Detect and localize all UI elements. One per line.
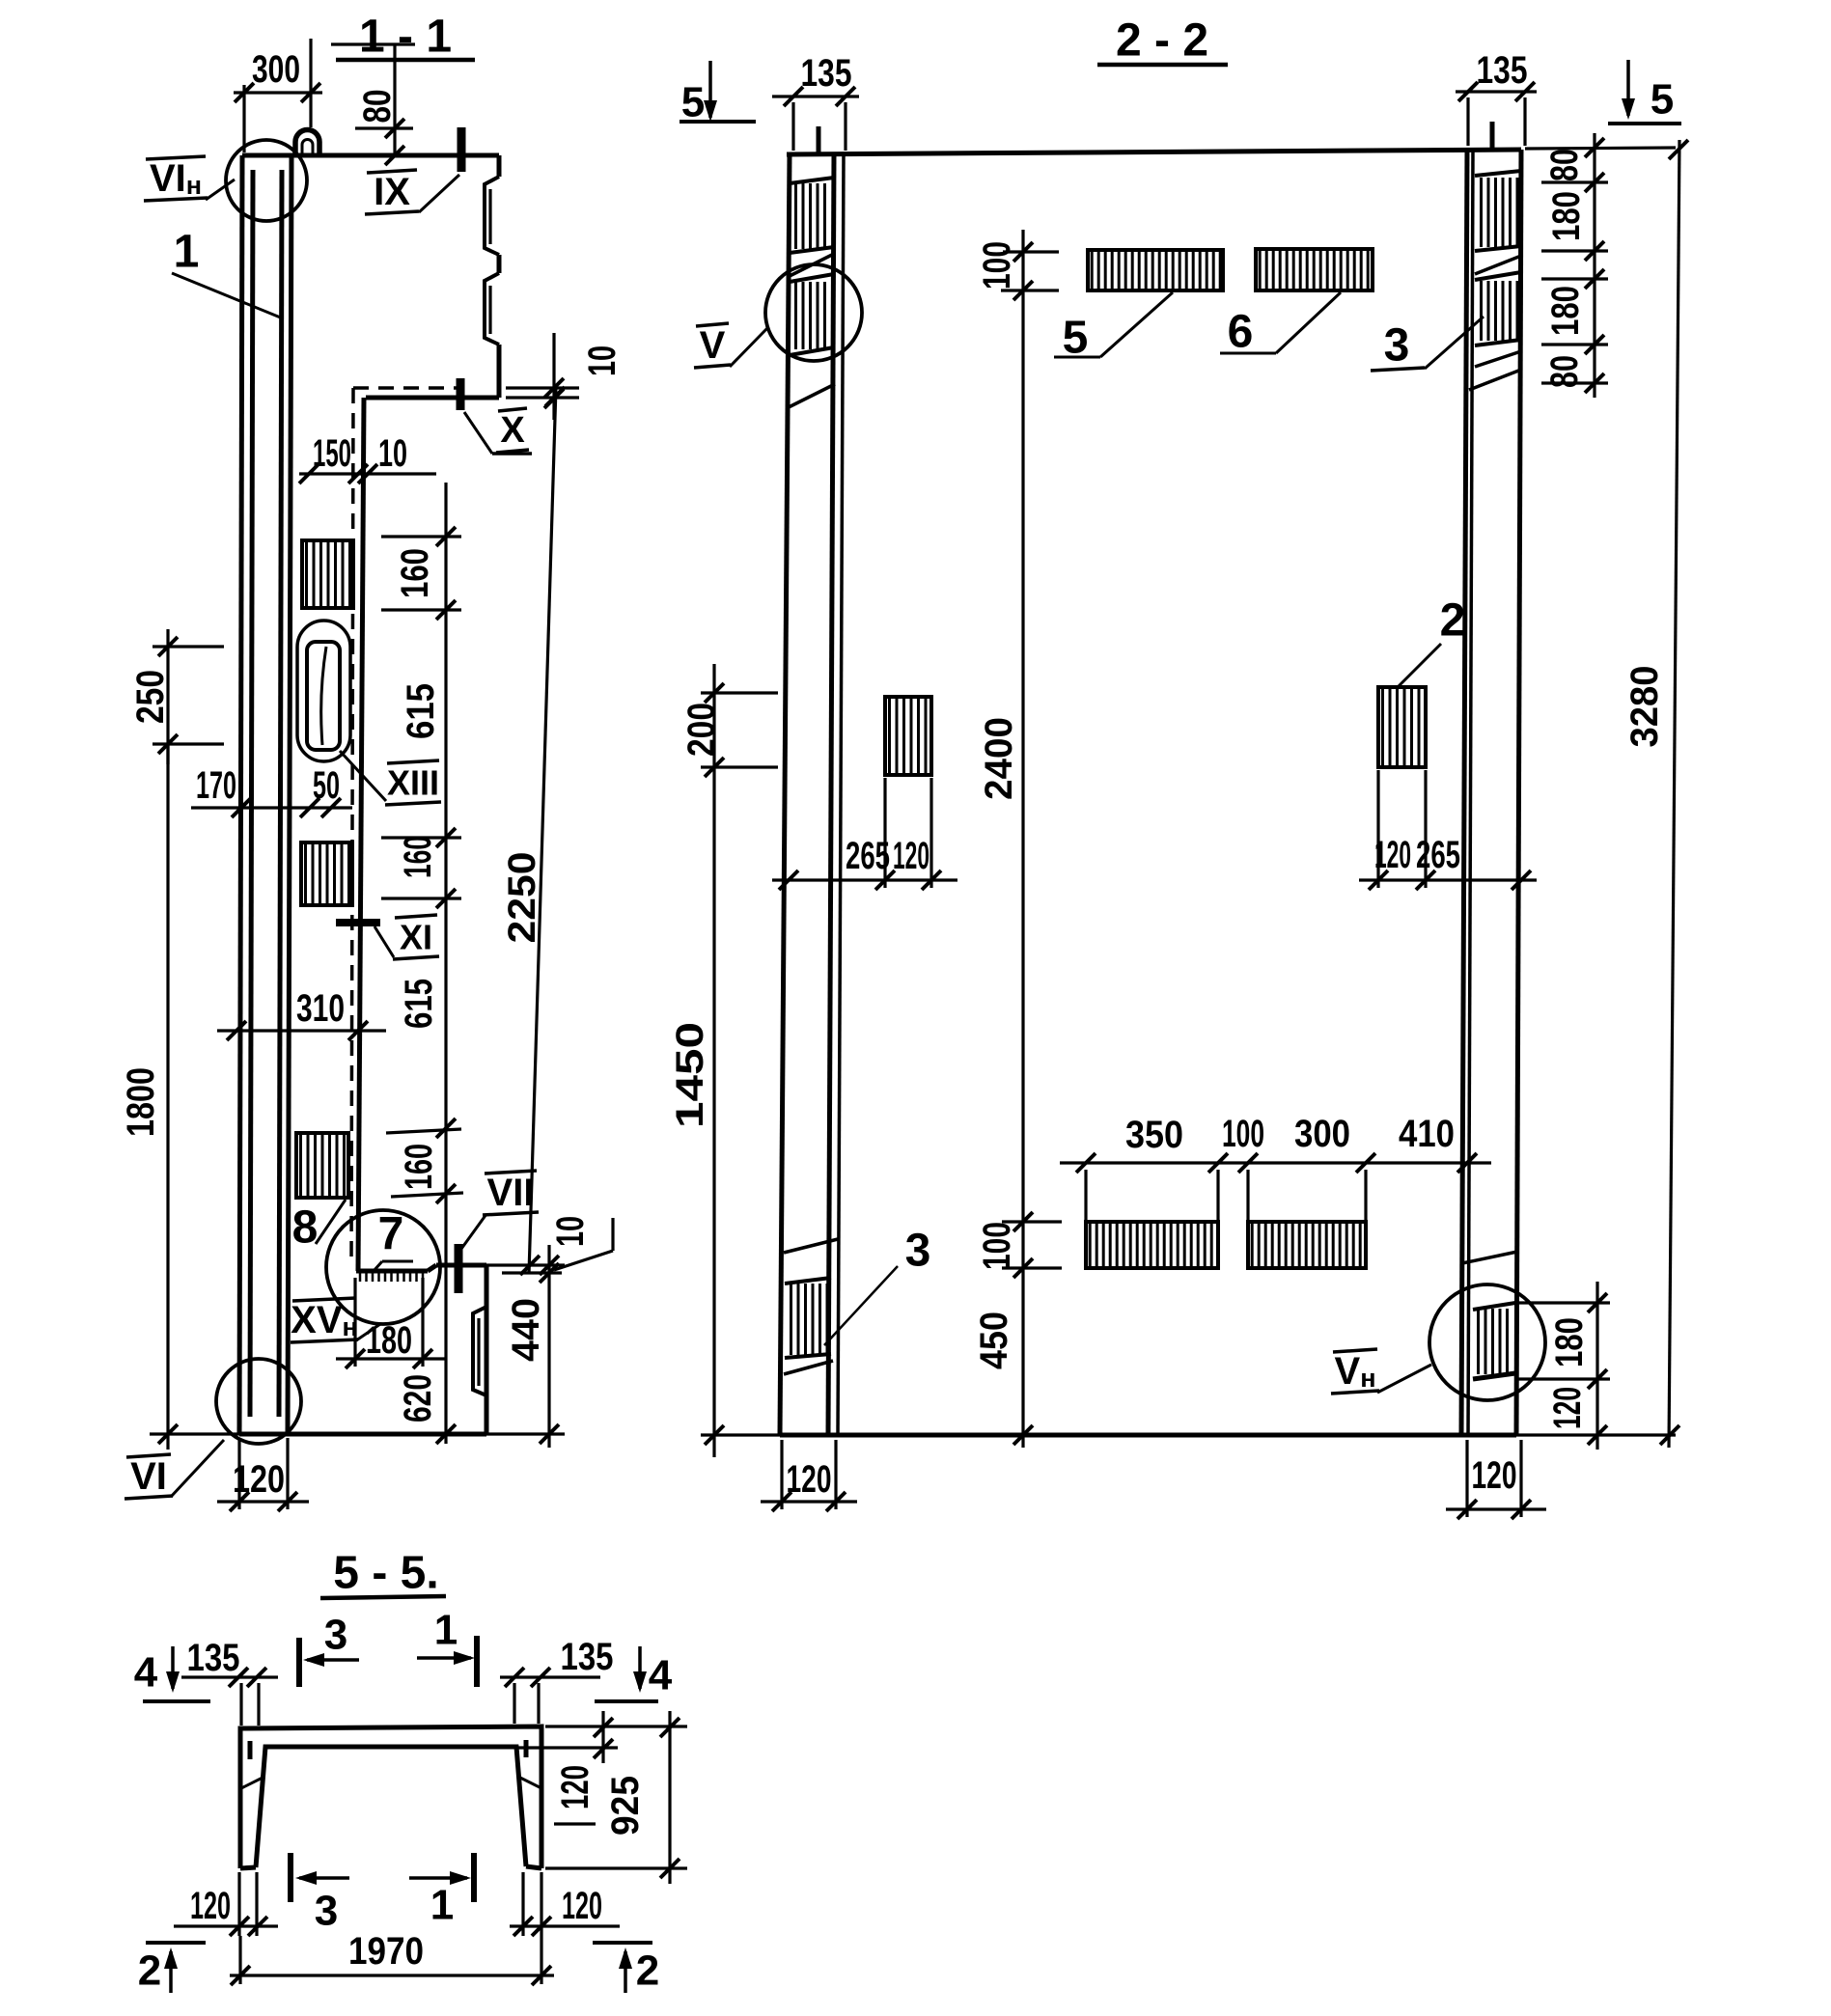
svg-text:310: 310 [296, 987, 345, 1030]
svg-text:5: 5 [681, 79, 705, 126]
svg-text:1: 1 [434, 1607, 458, 1654]
svg-text:VI: VI [130, 1455, 167, 1498]
svg-text:265: 265 [846, 835, 890, 877]
svg-text:2: 2 [636, 1947, 659, 1995]
svg-text:2400: 2400 [978, 717, 1020, 800]
svg-text:VII: VII [487, 1172, 535, 1214]
svg-text:160: 160 [397, 836, 439, 878]
svg-text:X: X [500, 410, 525, 451]
svg-text:265: 265 [1416, 834, 1460, 876]
svg-text:620: 620 [397, 1374, 439, 1422]
svg-text:615: 615 [398, 979, 440, 1029]
svg-text:1450: 1450 [669, 1022, 711, 1128]
svg-text:10: 10 [581, 345, 624, 376]
svg-text:4: 4 [649, 1652, 673, 1699]
svg-text:100: 100 [976, 241, 1018, 290]
svg-text:2: 2 [138, 1947, 161, 1995]
svg-text:3280: 3280 [1623, 666, 1666, 748]
svg-text:450: 450 [973, 1312, 1015, 1369]
svg-text:170: 170 [196, 764, 236, 807]
svg-text:300: 300 [252, 48, 300, 91]
svg-text:8: 8 [292, 1202, 319, 1254]
svg-text:135: 135 [561, 1636, 614, 1678]
svg-text:3: 3 [315, 1888, 338, 1935]
svg-text:120: 120 [190, 1885, 231, 1927]
svg-text:2: 2 [1440, 595, 1466, 647]
svg-text:1: 1 [430, 1882, 454, 1929]
svg-text:100: 100 [1222, 1113, 1264, 1155]
svg-text:5: 5 [1651, 76, 1674, 124]
svg-text:5 - 5.: 5 - 5. [333, 1548, 438, 1599]
svg-text:2 - 2: 2 - 2 [1116, 15, 1208, 67]
svg-text:4: 4 [134, 1649, 158, 1697]
svg-text:410: 410 [1399, 1113, 1455, 1155]
svg-text:3: 3 [1384, 320, 1410, 372]
svg-text:160: 160 [394, 548, 436, 598]
svg-text:XI: XI [400, 918, 432, 957]
svg-text:180: 180 [1545, 191, 1588, 241]
svg-text:80: 80 [356, 90, 399, 124]
svg-text:135: 135 [187, 1637, 240, 1679]
svg-text:180: 180 [1544, 286, 1587, 336]
svg-text:615: 615 [400, 683, 442, 739]
svg-text:120: 120 [787, 1458, 832, 1501]
svg-text:10: 10 [378, 432, 407, 475]
svg-text:120: 120 [1472, 1454, 1517, 1497]
svg-text:1970: 1970 [348, 1930, 424, 1973]
svg-text:10: 10 [549, 1216, 592, 1247]
svg-text:80: 80 [1543, 355, 1586, 388]
svg-text:440: 440 [505, 1298, 547, 1362]
svg-text:200: 200 [680, 703, 723, 757]
svg-text:300: 300 [1294, 1113, 1350, 1155]
svg-text:3: 3 [905, 1226, 931, 1277]
svg-text:135: 135 [801, 52, 852, 95]
svg-text:120: 120 [1546, 1387, 1589, 1429]
svg-text:V: V [700, 324, 726, 367]
svg-text:1800: 1800 [120, 1067, 162, 1137]
svg-text:350: 350 [1125, 1114, 1183, 1156]
svg-text:7: 7 [378, 1209, 404, 1260]
svg-text:80: 80 [1543, 149, 1586, 181]
svg-text:925: 925 [604, 1776, 647, 1836]
svg-text:IX: IX [374, 171, 410, 213]
svg-text:135: 135 [1477, 49, 1528, 92]
svg-text:180: 180 [366, 1319, 412, 1362]
svg-text:180: 180 [1548, 1317, 1591, 1367]
svg-text:160: 160 [398, 1144, 440, 1190]
svg-text:120: 120 [893, 835, 929, 877]
svg-text:6: 6 [1228, 307, 1254, 358]
svg-text:120: 120 [1374, 834, 1411, 876]
svg-text:120: 120 [562, 1885, 602, 1927]
svg-text:250: 250 [129, 670, 172, 724]
svg-text:3: 3 [324, 1612, 347, 1659]
svg-text:1 - 1: 1 - 1 [359, 12, 452, 63]
svg-text:1: 1 [174, 227, 200, 278]
svg-text:2250: 2250 [501, 852, 543, 944]
svg-text:100: 100 [976, 1222, 1018, 1270]
svg-text:XIII: XIII [387, 763, 439, 803]
svg-text:120: 120 [554, 1765, 596, 1809]
svg-text:150: 150 [313, 432, 351, 475]
